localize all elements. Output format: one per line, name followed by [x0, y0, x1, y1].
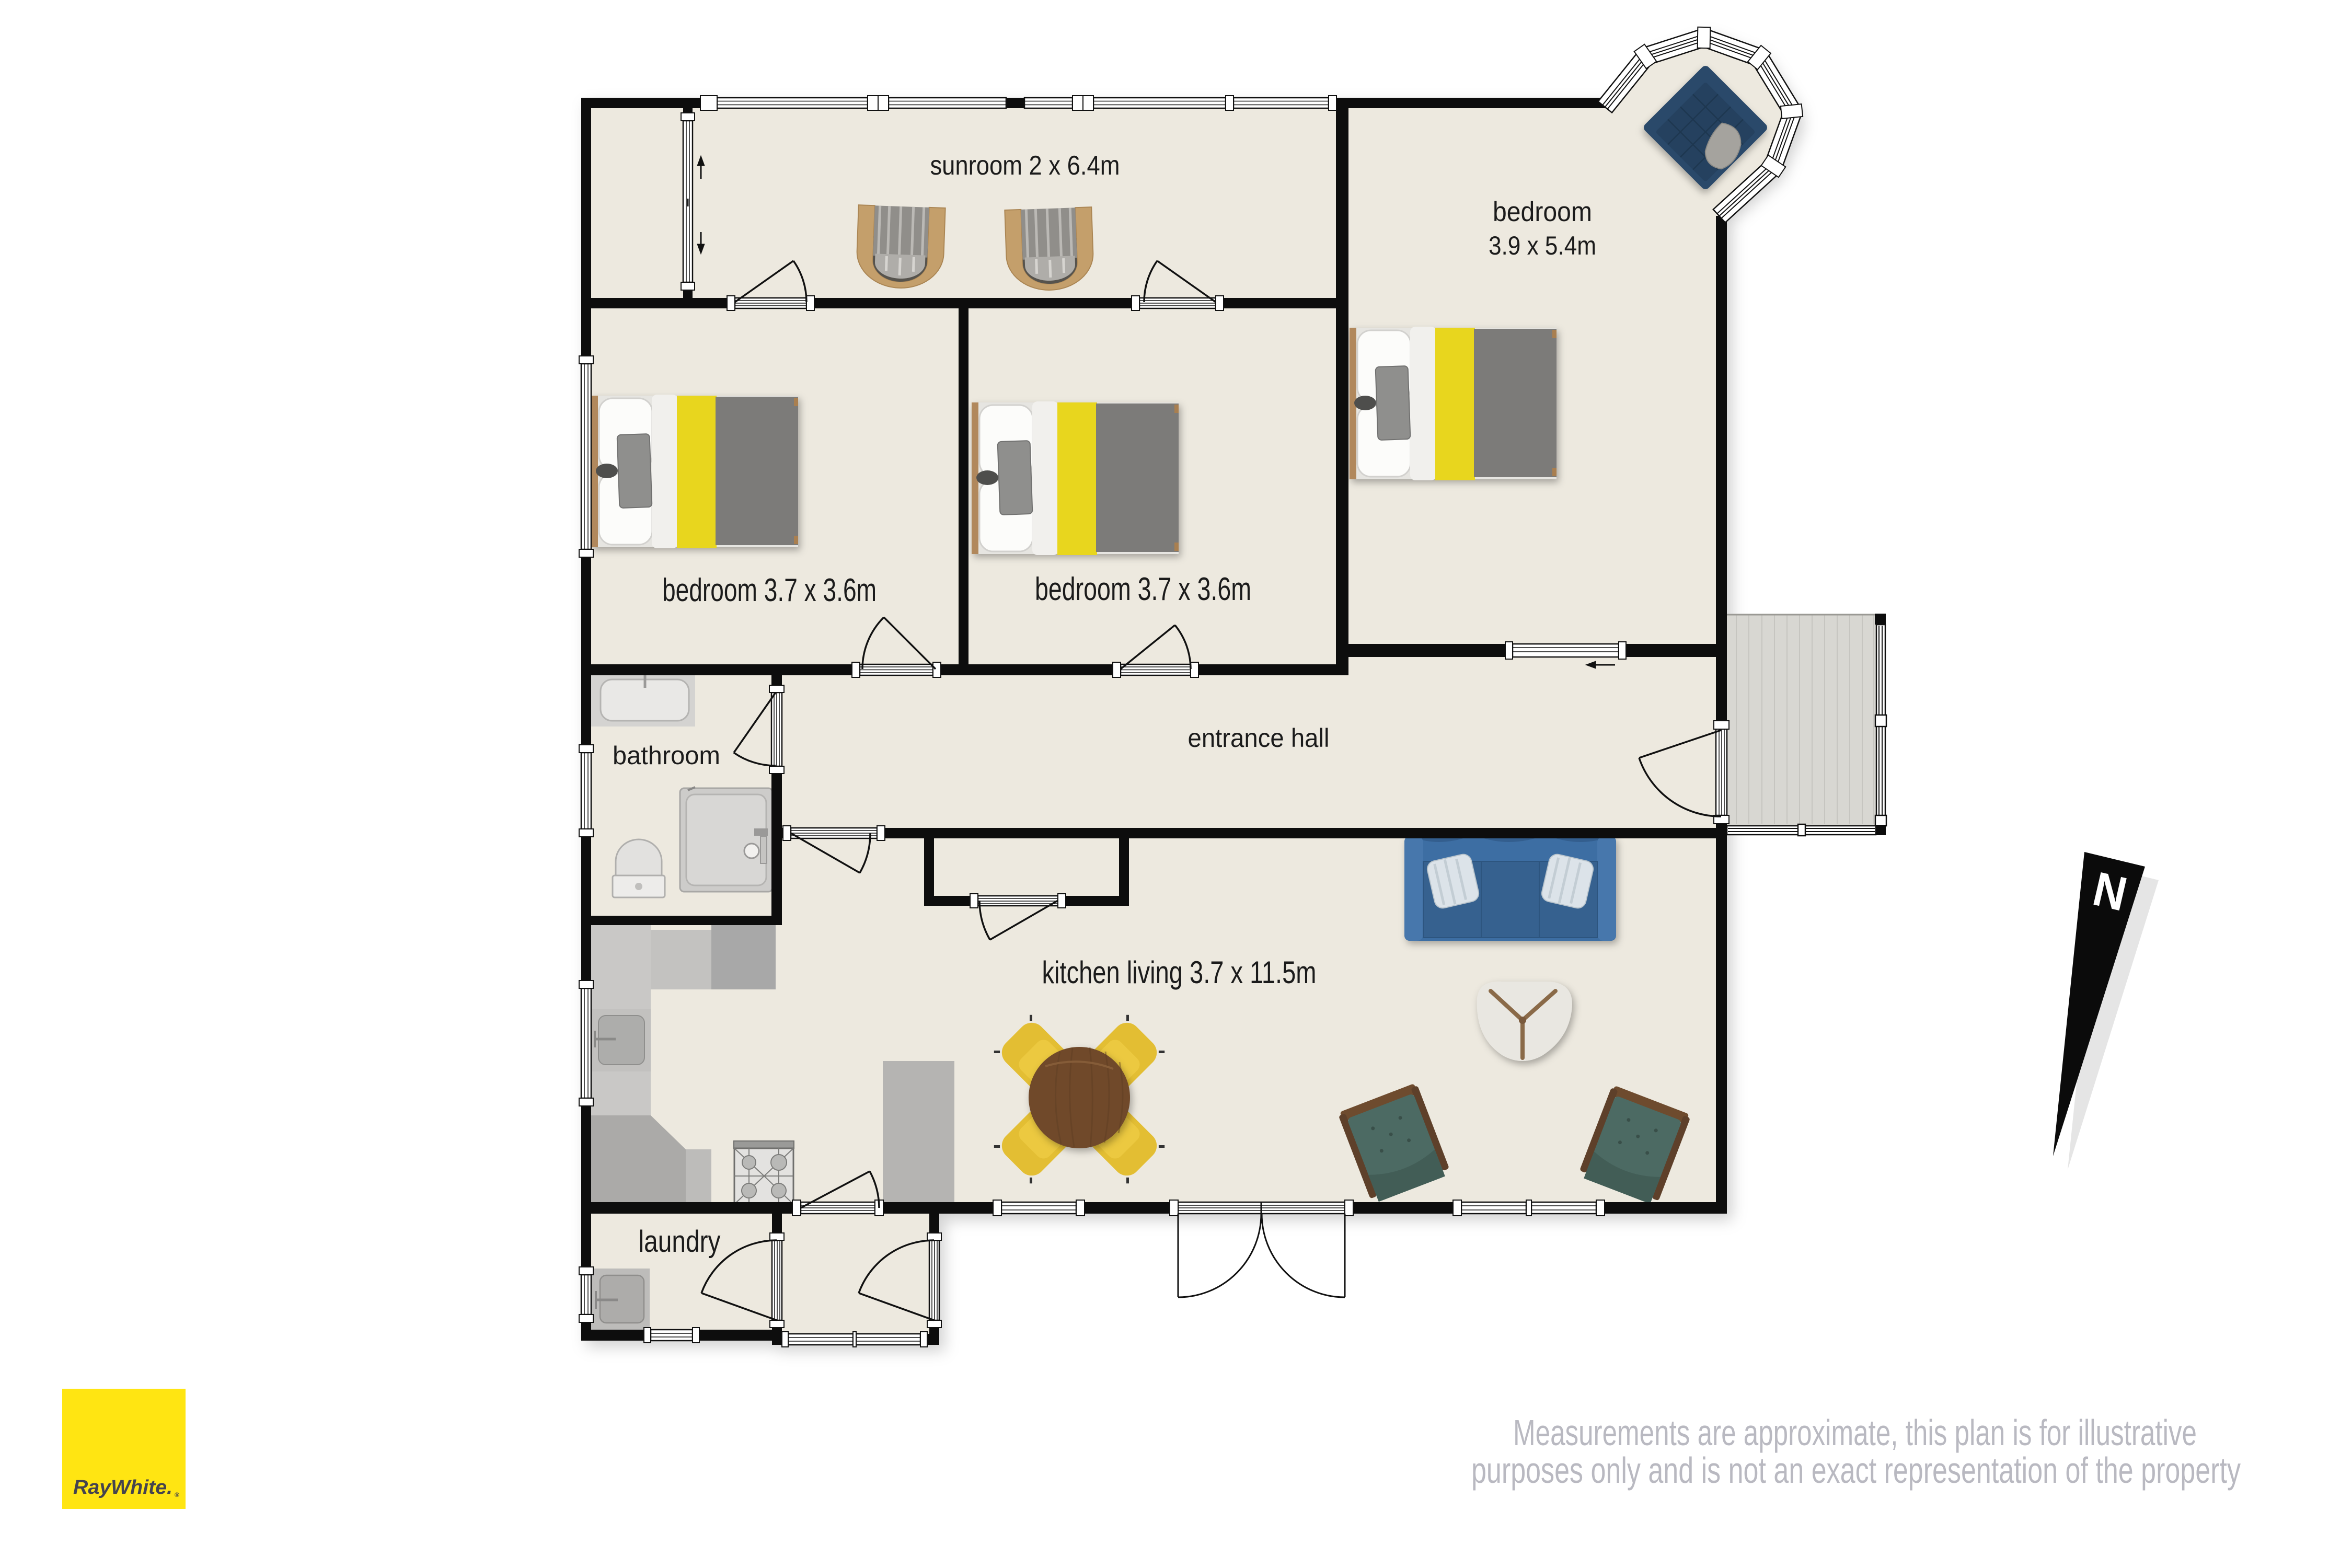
svg-text:purposes only and is not an ex: purposes only and is not an exact repres…: [1471, 1450, 2241, 1491]
svg-text:kitchen living 3.7 x 11.5m: kitchen living 3.7 x 11.5m: [1042, 955, 1317, 990]
svg-text:laundry: laundry: [639, 1225, 721, 1259]
svg-text:bathroom: bathroom: [613, 742, 720, 770]
svg-text:Measurements are approximate,: Measurements are approximate, this plan …: [1513, 1412, 2197, 1453]
svg-text:sunroom 2 x 6.4m: sunroom 2 x 6.4m: [930, 151, 1120, 181]
svg-text:RayWhite.: RayWhite.: [73, 1477, 172, 1498]
svg-text:bedroom: bedroom: [1493, 197, 1592, 227]
svg-text:bedroom 3.7 x 3.6m: bedroom 3.7 x 3.6m: [1035, 571, 1251, 607]
svg-text:®: ®: [175, 1491, 179, 1498]
svg-text:entrance hall: entrance hall: [1188, 723, 1330, 753]
svg-text:bedroom 3.7 x 3.6m: bedroom 3.7 x 3.6m: [662, 572, 877, 608]
svg-text:3.9 x 5.4m: 3.9 x 5.4m: [1489, 231, 1596, 260]
